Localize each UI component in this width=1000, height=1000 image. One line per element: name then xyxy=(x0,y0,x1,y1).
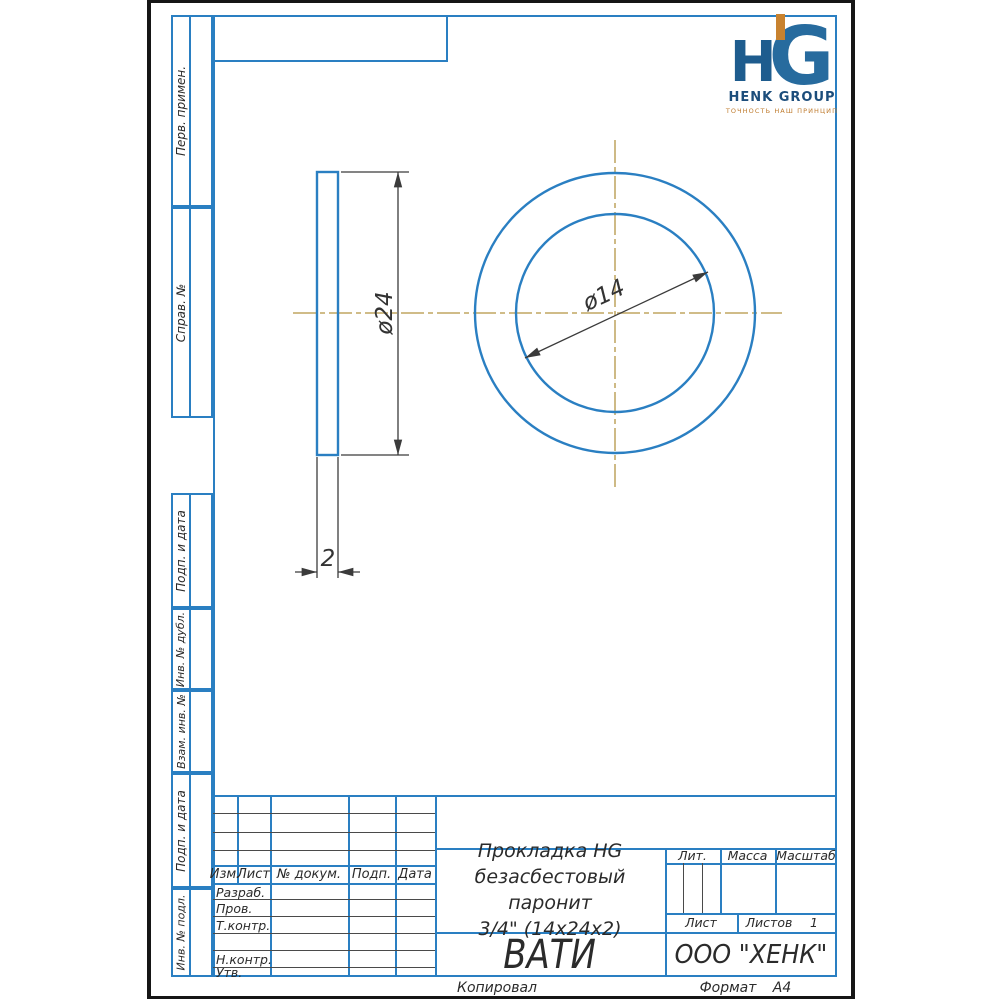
mass-header: Масса xyxy=(720,848,775,863)
part-name-line1: Прокладка HG xyxy=(478,838,623,864)
lit-subcell-line xyxy=(683,863,684,913)
title-block-line xyxy=(213,795,837,797)
dim-text-thickness: 2 xyxy=(321,546,336,572)
staff-row-line xyxy=(213,933,435,934)
col-header-date: Дата xyxy=(395,865,435,883)
material-cell: ВАТИ xyxy=(435,932,665,977)
revision-row-line xyxy=(213,850,435,851)
part-name-cell: Прокладка HG безасбестовый паронит 3/4" … xyxy=(437,850,663,930)
lit-subcell-line xyxy=(702,863,703,913)
henk-group-logo: H G HENK GROUP ТОЧНОСТЬ НАШ ПРИНЦИП xyxy=(720,16,844,115)
sheets-label: Листов xyxy=(737,913,801,932)
staff-label-prov: Пров. xyxy=(216,901,270,916)
col-header-izm: Изм. xyxy=(213,865,237,883)
revision-row-line xyxy=(213,832,435,833)
staff-row-line xyxy=(213,916,435,917)
dim-text-outer-diameter: ø24 xyxy=(372,291,398,335)
title-block-line xyxy=(665,863,837,865)
lit-header: Лит. xyxy=(665,848,720,863)
dim-text-inner-diameter: ø14 xyxy=(578,275,629,317)
logo-tagline: ТОЧНОСТЬ НАШ ПРИНЦИП xyxy=(720,107,844,115)
staff-row-line xyxy=(213,950,435,951)
logo-monogram: H G xyxy=(720,16,844,86)
format-value: А4 xyxy=(765,979,799,996)
staff-label-utv: Утв. xyxy=(216,965,270,980)
material-value: ВАТИ xyxy=(504,932,597,978)
sheet-label: Лист xyxy=(665,913,737,932)
col-header-list: Лист xyxy=(237,865,270,883)
drawing-scan-canvas: { "page": { "footer": { "copied": "Копир… xyxy=(0,0,1000,1000)
part-name-line2: безасбестовый паронит xyxy=(437,864,663,916)
format-label: Формат xyxy=(690,979,766,996)
scale-header: Масштаб xyxy=(775,848,837,863)
col-header-doc: № докум. xyxy=(270,865,348,883)
copied-by-label: Копировал xyxy=(447,979,547,996)
revision-row-line xyxy=(213,813,435,814)
staff-label-razrab: Разраб. xyxy=(216,885,270,900)
company-value: ООО "ХЕНК" xyxy=(675,940,828,970)
company-cell: ООО "ХЕНК" xyxy=(665,932,837,977)
centerlines xyxy=(293,140,782,487)
staff-label-tkontr: Т.контр. xyxy=(216,918,270,933)
col-header-sign: Подп. xyxy=(348,865,395,883)
logo-orange-bar xyxy=(776,14,785,40)
sheets-value: 1 xyxy=(798,913,830,932)
